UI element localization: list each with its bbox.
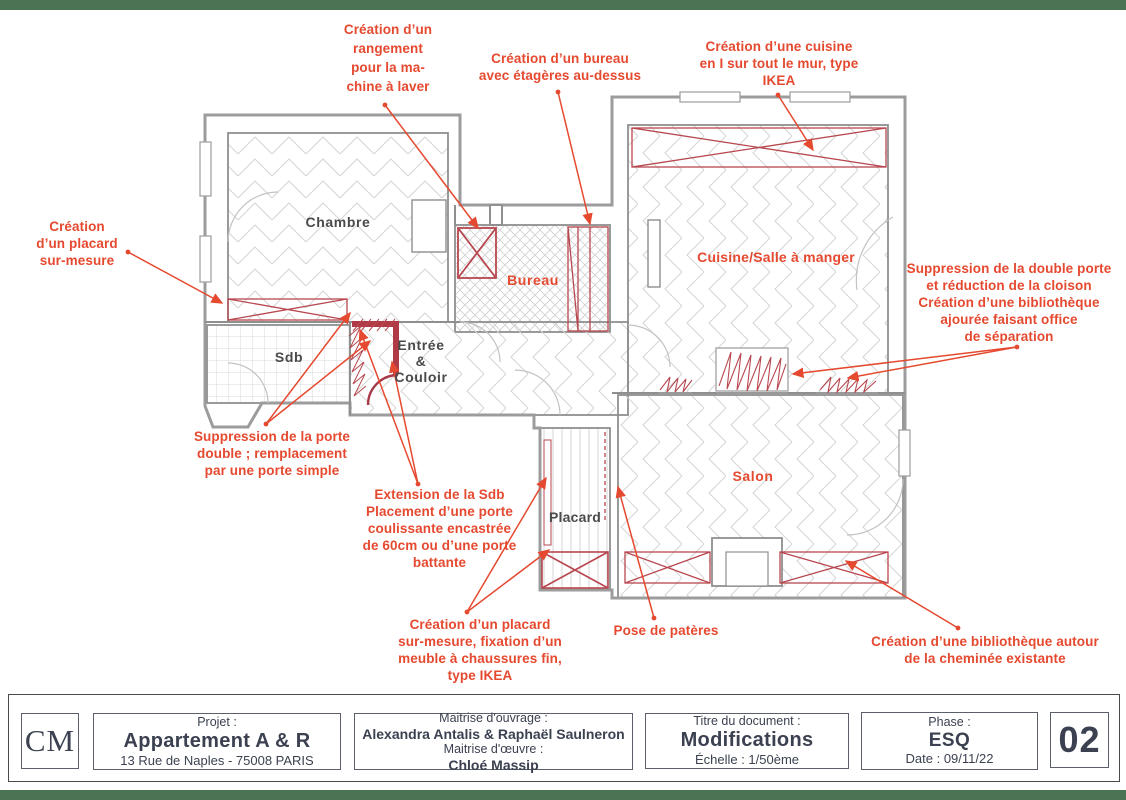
document-box: Titre du document : Modifications Échell… — [645, 713, 849, 769]
phase-value: ESQ — [929, 730, 971, 751]
maitrise-box: Maitrise d'ouvrage : Alexandra Antalis &… — [354, 713, 633, 770]
room-label-sdb: Sdb — [264, 349, 314, 365]
annotation-bureau-etageres: Création d’un bureau avec étagères au-de… — [460, 50, 660, 84]
room-label-bureau: Bureau — [493, 272, 573, 288]
maitrise-oeuvre-name: Chloé Massip — [448, 757, 538, 773]
window — [790, 92, 850, 102]
phase-date: Date : 09/11/22 — [906, 751, 994, 767]
project-label: Projet : — [197, 715, 237, 730]
title-block: CM Projet : Appartement A & R 13 Rue de … — [8, 694, 1120, 782]
project-address: 13 Rue de Naples - 75008 PARIS — [120, 753, 313, 769]
logo-box: CM — [21, 713, 79, 769]
window — [899, 430, 910, 476]
sheet-number: 02 — [1058, 719, 1100, 761]
project-name: Appartement A & R — [124, 730, 311, 753]
room-label-placard: Placard — [541, 509, 609, 525]
maitrise-ouvrage-name: Alexandra Antalis & Raphaël Saulneron — [362, 726, 624, 742]
phase-label: Phase : — [928, 715, 970, 730]
window — [200, 142, 211, 196]
maitrise-ouvrage-label: Maitrise d'ouvrage : — [439, 711, 548, 726]
room-label-chambre: Chambre — [288, 214, 388, 230]
project-box: Projet : Appartement A & R 13 Rue de Nap… — [93, 713, 341, 770]
maitrise-oeuvre-label: Maitrise d'œuvre : — [444, 742, 544, 757]
annotation-bibliotheque-cheminee: Création d’une bibliothèque autour de la… — [855, 633, 1115, 667]
logo-cm: CM — [25, 723, 75, 759]
annotation-placard-sur-mesure: Création d’un placard sur-mesure — [17, 218, 137, 269]
annotation-machine-a-laver: Création d’un rangement pour la ma- chin… — [328, 20, 448, 96]
annotation-placard-chaussures: Création d’un placard sur-mesure, fixati… — [380, 616, 580, 684]
document-label: Titre du document : — [693, 714, 800, 729]
room-label-salon: Salon — [723, 468, 783, 484]
room-label-entree: Entrée & Couloir — [381, 337, 461, 385]
sheet-number-box: 02 — [1050, 712, 1109, 768]
annotation-porte-simple: Suppression de la porte double ; remplac… — [177, 428, 367, 479]
room-label-cuisine: Cuisine/Salle à manger — [676, 249, 876, 265]
phase-box: Phase : ESQ Date : 09/11/22 — [861, 712, 1038, 770]
annotation-cuisine-ikea: Création d’une cuisine en I sur tout le … — [679, 38, 879, 89]
annotation-pateres: Pose de patères — [596, 622, 736, 639]
annotation-extension-sdb: Extension de la Sdb Placement d’une port… — [347, 486, 532, 571]
fireplace — [712, 538, 782, 586]
window — [200, 236, 211, 282]
annotation-double-porte-cloison: Suppression de la double porte et réduct… — [894, 260, 1124, 345]
document-title: Modifications — [681, 729, 814, 752]
document-scale: Échelle : 1/50ème — [695, 752, 799, 768]
window — [680, 92, 740, 102]
plan-sheet: { "page": { "accent_border_color": "#4d7… — [0, 0, 1126, 800]
